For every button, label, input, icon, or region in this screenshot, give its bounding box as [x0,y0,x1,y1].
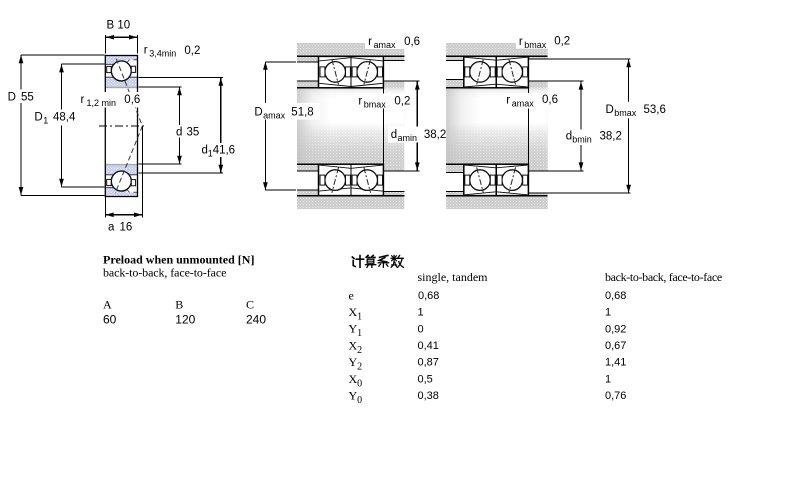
svg-text:1: 1 [43,115,48,125]
svg-text:16: 16 [120,222,133,234]
svg-text:0,67: 0,67 [605,340,626,352]
svg-text:0,92: 0,92 [605,323,626,335]
svg-text:r: r [506,94,510,106]
svg-text:55: 55 [21,91,34,103]
svg-text:0,2: 0,2 [184,45,200,57]
svg-text:60: 60 [103,312,117,326]
svg-text:bmax: bmax [614,108,637,118]
svg-text:d: d [566,131,572,143]
svg-text:1,2 min: 1,2 min [87,98,117,108]
svg-text:35: 35 [187,127,200,139]
svg-text:53,6: 53,6 [644,104,666,116]
svg-text:e: e [349,288,354,302]
svg-text:Y1: Y1 [349,322,363,340]
svg-text:back-to-back, face-to-face: back-to-back, face-to-face [605,270,722,284]
svg-text:d: d [176,127,182,139]
svg-text:D: D [606,104,614,116]
svg-text:0,87: 0,87 [418,357,439,369]
svg-text:0,76: 0,76 [605,390,626,402]
svg-text:Preload when unmounted [N]: Preload when unmounted [N] [103,253,254,267]
svg-text:51,8: 51,8 [291,106,313,118]
svg-text:r: r [519,36,523,48]
svg-text:amin: amin [398,133,418,143]
svg-text:r: r [368,36,372,48]
svg-text:41,6: 41,6 [213,145,235,157]
svg-text:1: 1 [605,373,611,385]
svg-text:B: B [175,298,183,312]
svg-text:0,6: 0,6 [404,36,420,48]
svg-text:single, tandem: single, tandem [418,270,489,284]
svg-text:A: A [103,298,112,312]
svg-text:0,5: 0,5 [418,373,433,385]
svg-text:amax: amax [263,110,286,120]
svg-text:r: r [144,45,148,57]
svg-text:0,2: 0,2 [394,96,410,108]
svg-text:bmax: bmax [524,40,547,50]
svg-text:r: r [358,96,362,108]
svg-text:X2: X2 [349,338,363,356]
svg-text:0,6: 0,6 [124,94,140,106]
svg-text:amax: amax [374,40,397,50]
svg-text:0,6: 0,6 [542,94,558,106]
svg-text:0: 0 [418,323,424,335]
svg-text:bmin: bmin [572,135,592,145]
svg-text:0,68: 0,68 [418,290,439,302]
svg-text:0,68: 0,68 [605,290,626,302]
svg-text:amax: amax [512,98,535,108]
svg-text:1,41: 1,41 [605,357,626,369]
svg-text:38,2: 38,2 [600,131,622,143]
svg-text:B 10: B 10 [107,20,131,32]
svg-text:X0: X0 [349,372,363,390]
svg-text:D: D [34,111,42,123]
svg-text:0,2: 0,2 [554,36,570,48]
svg-text:240: 240 [246,312,266,326]
svg-text:48,4: 48,4 [53,111,76,123]
svg-text:0,41: 0,41 [418,340,439,352]
svg-text:C: C [246,298,254,312]
svg-text:120: 120 [175,312,195,326]
svg-text:back-to-back, face-to-face: back-to-back, face-to-face [103,266,226,280]
svg-text:Y0: Y0 [349,389,363,407]
svg-text:D: D [254,106,262,118]
svg-text:d: d [391,129,397,141]
svg-text:0,38: 0,38 [418,390,439,402]
svg-text:3,4min: 3,4min [149,49,176,59]
svg-text:1: 1 [605,307,611,319]
svg-text:1: 1 [418,307,424,319]
svg-text:D: D [8,91,16,103]
svg-text:Y2: Y2 [349,355,363,373]
svg-text:38,2: 38,2 [424,129,446,141]
svg-text:bmax: bmax [364,100,387,110]
svg-text:X1: X1 [349,305,363,323]
svg-text:r: r [81,94,85,106]
svg-text:a: a [108,222,115,234]
